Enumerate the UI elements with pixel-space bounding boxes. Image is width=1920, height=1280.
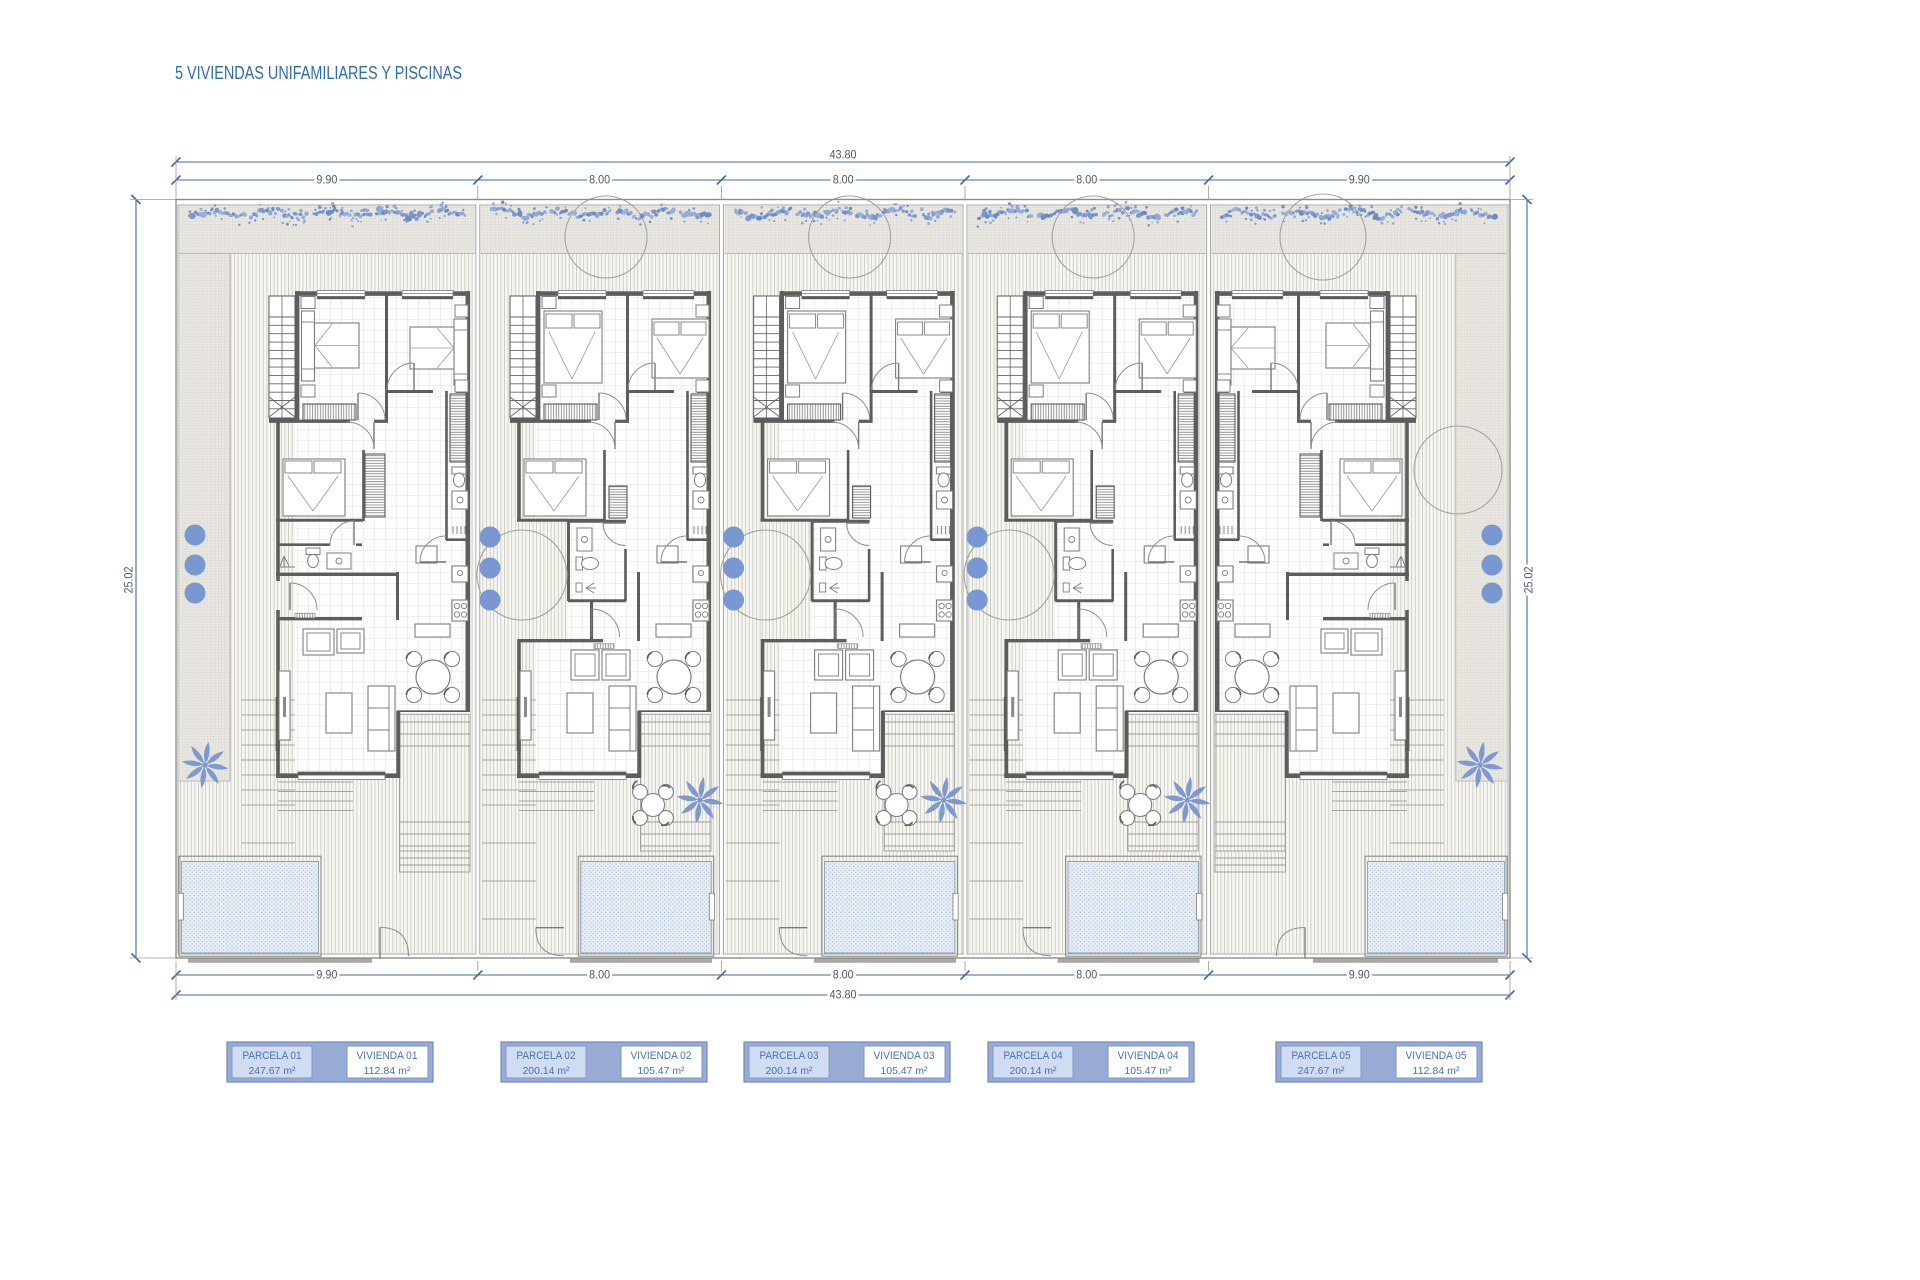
svg-text:105.47 m²: 105.47 m² [1125, 1066, 1173, 1077]
svg-text:247.67 m²: 247.67 m² [1298, 1066, 1346, 1077]
svg-text:25.02: 25.02 [122, 566, 136, 593]
svg-text:9.90: 9.90 [316, 968, 337, 982]
svg-text:8.00: 8.00 [589, 173, 610, 187]
svg-text:25.02: 25.02 [1522, 566, 1536, 593]
svg-text:43.80: 43.80 [830, 988, 857, 1002]
svg-text:PARCELA 03: PARCELA 03 [760, 1050, 819, 1062]
svg-text:5 VIVIENDAS UNIFAMILIARES Y PI: 5 VIVIENDAS UNIFAMILIARES Y PISCINAS [175, 63, 462, 83]
svg-text:200.14 m²: 200.14 m² [523, 1066, 571, 1077]
svg-text:112.84 m²: 112.84 m² [1413, 1066, 1461, 1077]
svg-text:247.67 m²: 247.67 m² [249, 1066, 297, 1077]
svg-text:VIVIENDA 03: VIVIENDA 03 [874, 1050, 935, 1062]
svg-text:VIVIENDA 02: VIVIENDA 02 [631, 1050, 692, 1062]
svg-text:9.90: 9.90 [1349, 968, 1370, 982]
svg-text:8.00: 8.00 [833, 173, 854, 187]
svg-text:VIVIENDA 01: VIVIENDA 01 [357, 1050, 418, 1062]
svg-text:8.00: 8.00 [589, 968, 610, 982]
svg-text:9.90: 9.90 [316, 173, 337, 187]
svg-text:PARCELA 01: PARCELA 01 [243, 1050, 302, 1062]
svg-text:PARCELA 02: PARCELA 02 [517, 1050, 576, 1062]
svg-text:VIVIENDA 04: VIVIENDA 04 [1118, 1050, 1179, 1062]
svg-text:112.84 m²: 112.84 m² [364, 1066, 412, 1077]
svg-text:8.00: 8.00 [1076, 173, 1097, 187]
svg-text:9.90: 9.90 [1349, 173, 1370, 187]
svg-text:PARCELA 04: PARCELA 04 [1004, 1050, 1063, 1062]
svg-text:105.47 m²: 105.47 m² [638, 1066, 686, 1077]
svg-text:105.47 m²: 105.47 m² [881, 1066, 929, 1077]
svg-text:200.14 m²: 200.14 m² [766, 1066, 814, 1077]
svg-text:PARCELA 05: PARCELA 05 [1292, 1050, 1351, 1062]
svg-text:200.14 m²: 200.14 m² [1010, 1066, 1058, 1077]
svg-text:8.00: 8.00 [1076, 968, 1097, 982]
svg-text:VIVIENDA 05: VIVIENDA 05 [1406, 1050, 1467, 1062]
svg-text:8.00: 8.00 [833, 968, 854, 982]
svg-text:43.80: 43.80 [830, 148, 857, 162]
